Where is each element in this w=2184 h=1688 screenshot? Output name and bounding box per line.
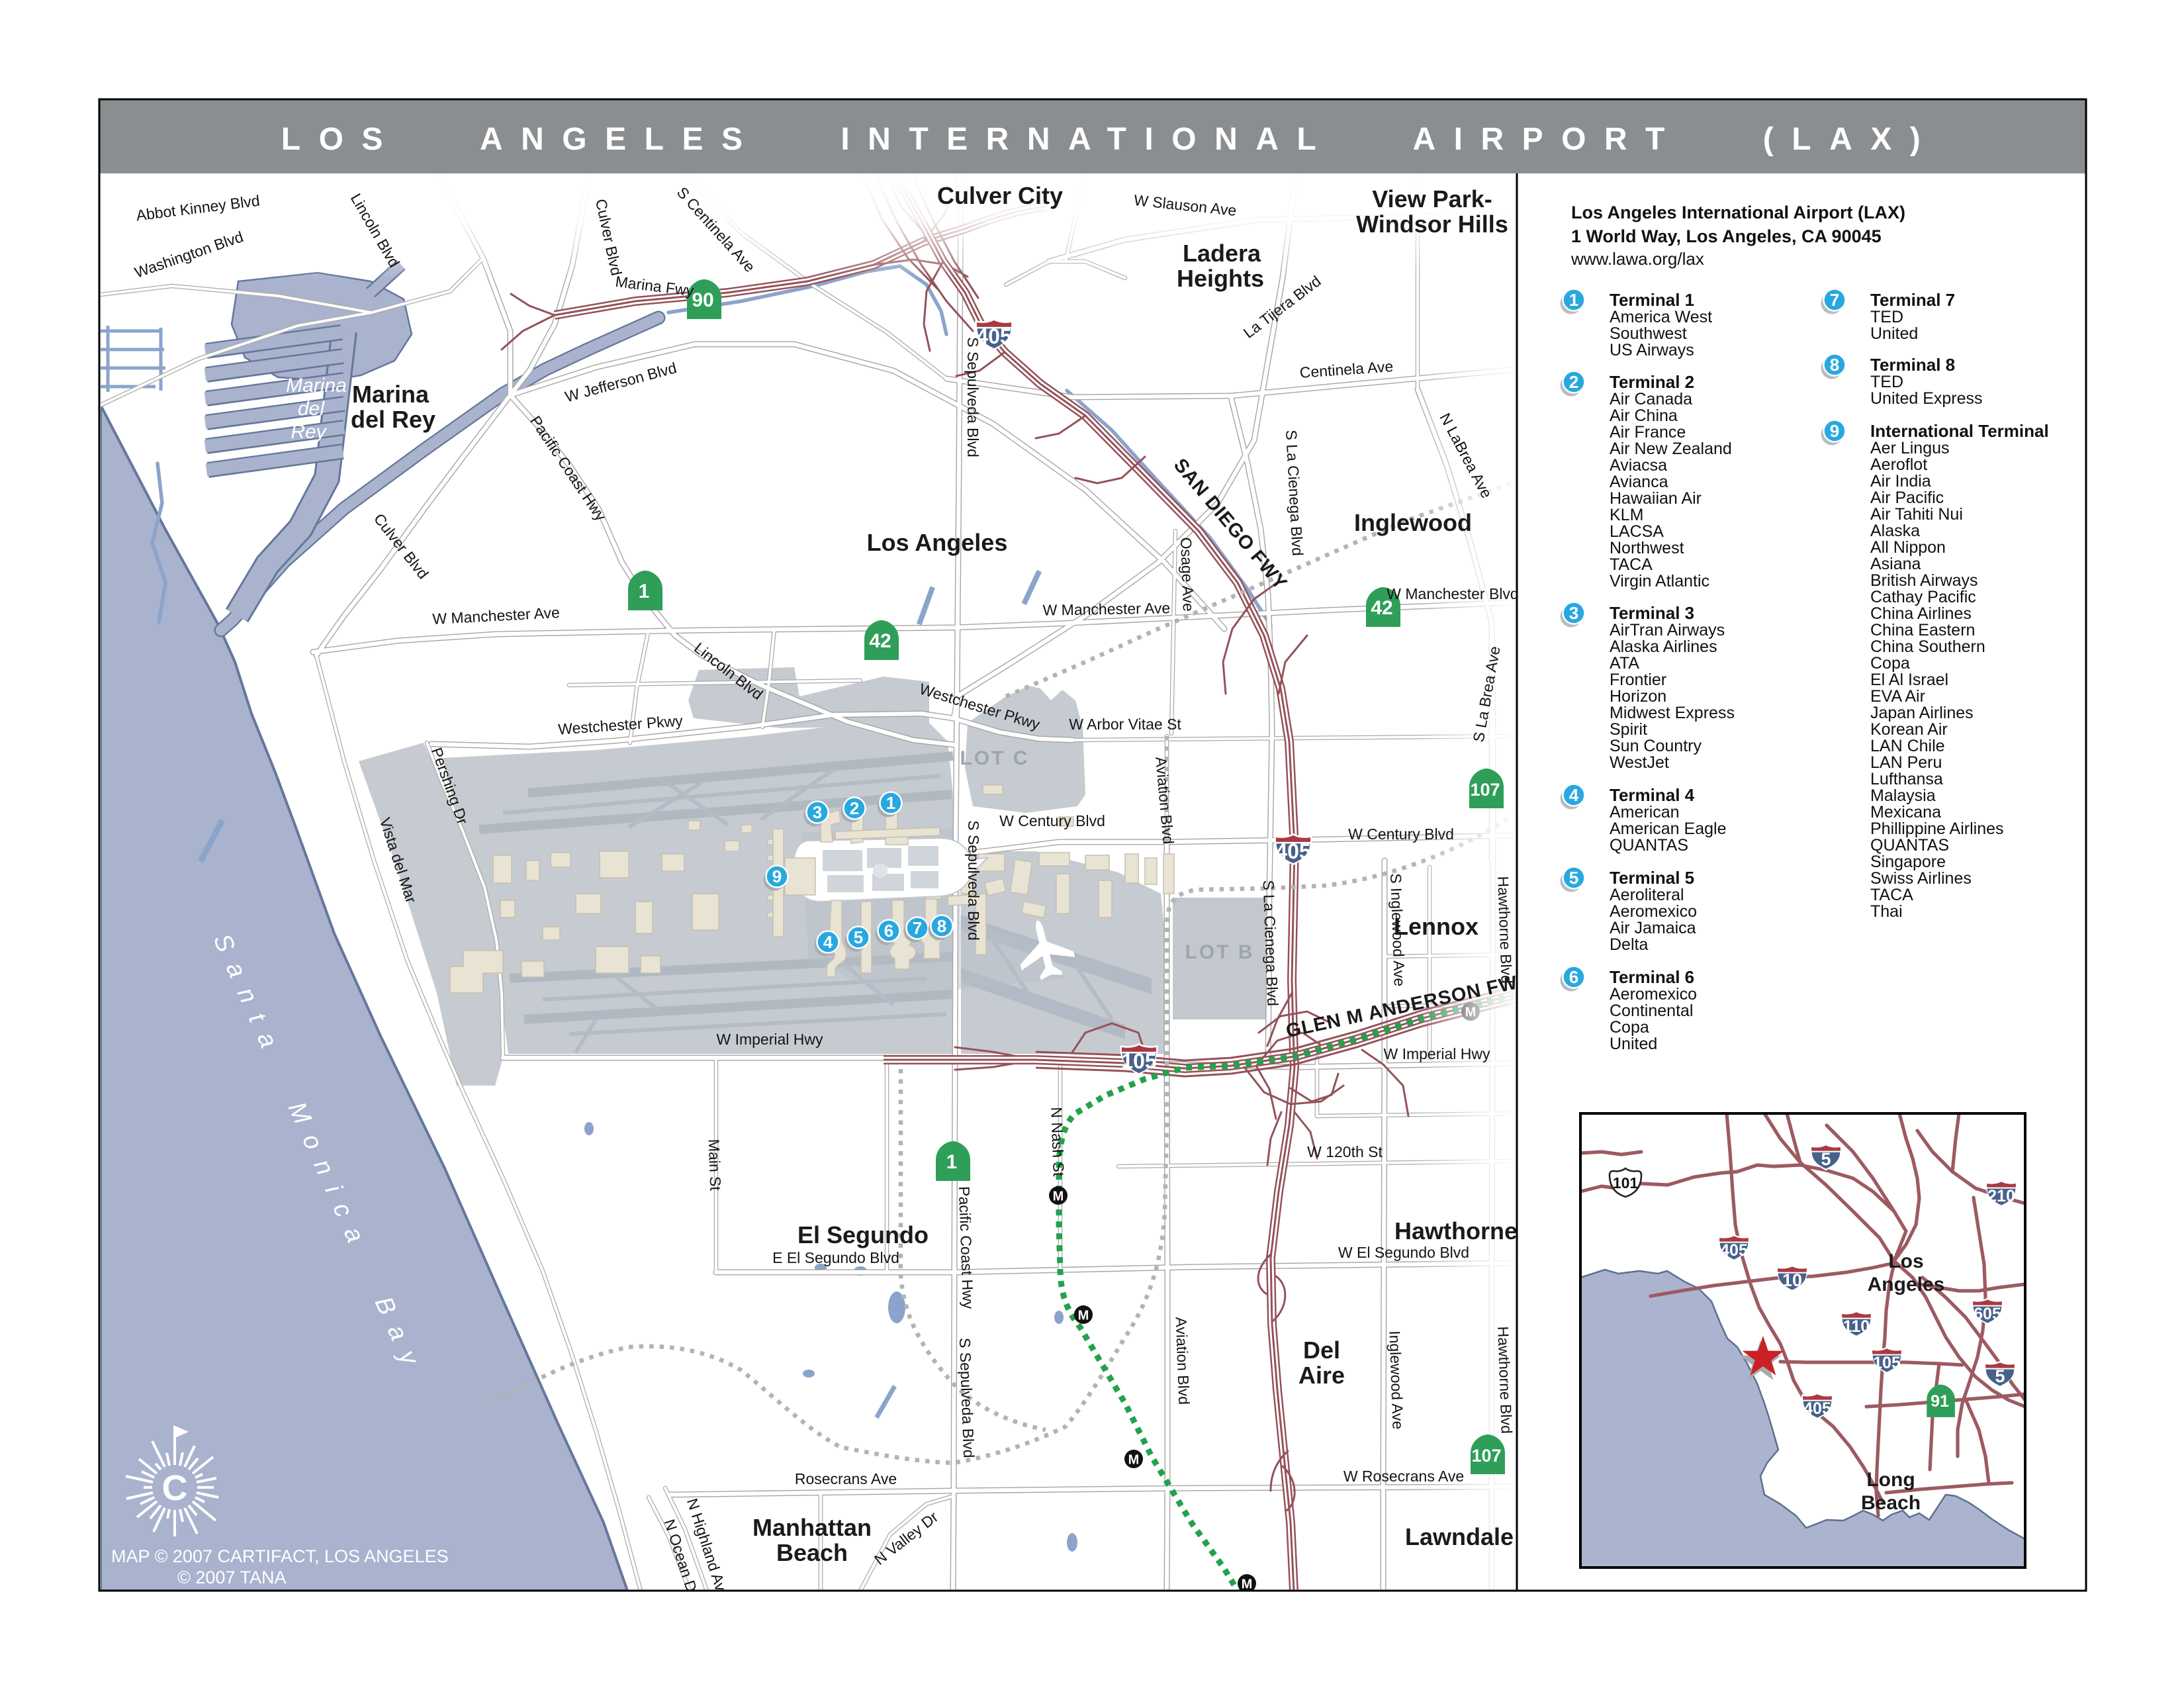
svg-text:6: 6 — [884, 921, 893, 941]
svg-text:EVA Air: EVA Air — [1870, 687, 1925, 706]
svg-text:Terminal 2: Terminal 2 — [1610, 372, 1694, 392]
svg-text:Main St: Main St — [705, 1139, 725, 1191]
svg-text:Swiss Airlines: Swiss Airlines — [1870, 869, 1972, 888]
svg-text:KLM: KLM — [1610, 506, 1643, 524]
svg-text:QUANTAS: QUANTAS — [1870, 836, 1949, 855]
svg-text:Air France: Air France — [1610, 423, 1686, 442]
svg-text:Aviacsa: Aviacsa — [1610, 456, 1667, 475]
svg-text:China Eastern: China Eastern — [1870, 621, 1975, 639]
svg-text:LAN Chile: LAN Chile — [1870, 737, 1945, 755]
svg-text:Beach: Beach — [1861, 1492, 1921, 1514]
svg-text:Spirit: Spirit — [1610, 720, 1647, 739]
svg-text:United Express: United Express — [1870, 389, 1983, 408]
svg-text:1 World Way, Los Angeles, CA 9: 1 World Way, Los Angeles, CA 90045 — [1571, 226, 1882, 246]
svg-text:Japan Airlines: Japan Airlines — [1870, 704, 1974, 722]
svg-text:Thai: Thai — [1870, 902, 1903, 921]
svg-text:Beach: Beach — [776, 1539, 848, 1566]
svg-text:90: 90 — [692, 289, 713, 311]
svg-text:El Segundo: El Segundo — [797, 1221, 929, 1248]
svg-text:www.lawa.org/lax: www.lawa.org/lax — [1570, 249, 1704, 269]
svg-text:Terminal 8: Terminal 8 — [1870, 355, 1955, 375]
svg-text:S Sepulveda Blvd: S Sepulveda Blvd — [965, 820, 982, 941]
svg-text:Air New Zealand: Air New Zealand — [1610, 440, 1732, 458]
svg-text:Angeles: Angeles — [1868, 1274, 1945, 1295]
svg-text:5: 5 — [1569, 868, 1578, 888]
svg-text:British Airways: British Airways — [1870, 571, 1978, 590]
svg-text:Marina: Marina — [286, 375, 347, 397]
svg-text:All Nippon: All Nippon — [1870, 538, 1946, 557]
svg-text:Delta: Delta — [1610, 935, 1648, 954]
svg-text:Frontier: Frontier — [1610, 671, 1666, 689]
svg-text:Air China: Air China — [1610, 406, 1678, 425]
svg-text:42: 42 — [869, 630, 891, 652]
svg-text:Los: Los — [1888, 1250, 1923, 1272]
svg-text:2: 2 — [1569, 372, 1578, 392]
svg-text:American: American — [1610, 803, 1680, 821]
svg-text:Culver City: Culver City — [937, 182, 1063, 209]
svg-text:W Manchester Blvd: W Manchester Blvd — [1387, 585, 1518, 602]
svg-text:Copa: Copa — [1870, 654, 1910, 673]
svg-text:Copa: Copa — [1610, 1018, 1649, 1037]
svg-text:107: 107 — [1471, 1446, 1501, 1466]
svg-text:Horizon: Horizon — [1610, 687, 1666, 706]
svg-text:Terminal 5: Terminal 5 — [1610, 868, 1694, 888]
svg-text:Aire: Aire — [1298, 1362, 1345, 1389]
svg-text:4: 4 — [823, 932, 833, 952]
svg-text:TED: TED — [1870, 308, 1903, 326]
svg-text:International Terminal: International Terminal — [1870, 421, 2049, 441]
svg-text:105: 105 — [1121, 1049, 1156, 1073]
svg-text:405: 405 — [1803, 1399, 1831, 1418]
svg-text:Singapore: Singapore — [1870, 853, 1946, 871]
svg-text:Lufthansa: Lufthansa — [1870, 770, 1943, 788]
svg-text:Aeromexico: Aeromexico — [1610, 985, 1697, 1004]
svg-text:3: 3 — [1569, 603, 1578, 623]
svg-text:Rosecrans Ave: Rosecrans Ave — [795, 1470, 897, 1487]
svg-text:Heights: Heights — [1177, 265, 1264, 292]
svg-text:6: 6 — [1569, 967, 1578, 987]
svg-text:Terminal 1: Terminal 1 — [1610, 290, 1694, 310]
svg-text:US Airways: US Airways — [1610, 341, 1694, 359]
svg-text:Terminal 7: Terminal 7 — [1870, 290, 1955, 310]
svg-text:405: 405 — [1275, 839, 1310, 863]
svg-text:C: C — [162, 1468, 188, 1508]
svg-text:5: 5 — [854, 927, 863, 947]
svg-text:Terminal 3: Terminal 3 — [1610, 603, 1694, 623]
svg-text:Inglewood: Inglewood — [1354, 509, 1472, 536]
svg-text:QUANTAS: QUANTAS — [1610, 836, 1688, 855]
svg-text:Aeromexico: Aeromexico — [1610, 902, 1697, 921]
svg-text:Los Angeles International Airp: Los Angeles International Airport (LAX) — [1571, 203, 1905, 222]
svg-text:Phillippine Airlines: Phillippine Airlines — [1870, 820, 2004, 838]
svg-text:9: 9 — [1830, 421, 1839, 441]
svg-text:Windsor Hills: Windsor Hills — [1356, 211, 1508, 238]
svg-text:Air Canada: Air Canada — [1610, 390, 1692, 408]
svg-text:Air Pacific: Air Pacific — [1870, 489, 1944, 507]
svg-text:Rey: Rey — [291, 421, 327, 443]
svg-text:Inglewood Ave: Inglewood Ave — [1386, 1331, 1406, 1430]
svg-text:LOT C: LOT C — [960, 747, 1030, 769]
svg-text:3: 3 — [813, 802, 822, 822]
svg-text:Avianca: Avianca — [1610, 473, 1668, 491]
svg-text:8: 8 — [937, 916, 946, 936]
svg-text:1: 1 — [886, 793, 895, 813]
svg-text:S Sepulveda Blvd: S Sepulveda Blvd — [964, 337, 981, 457]
svg-text:Aeroflot: Aeroflot — [1870, 455, 1927, 474]
svg-text:Southwest: Southwest — [1610, 324, 1687, 343]
svg-text:2: 2 — [850, 798, 859, 818]
svg-text:Aviation Blvd: Aviation Blvd — [1173, 1317, 1193, 1405]
svg-text:United: United — [1870, 324, 1918, 343]
svg-text:LOS ANGELES INTERNATIONAL AIRP: LOS ANGELES INTERNATIONAL AIRPORT (LAX) — [281, 122, 1939, 157]
svg-text:210: 210 — [1987, 1187, 2015, 1205]
svg-text:Continental: Continental — [1610, 1002, 1693, 1020]
svg-text:LACSA: LACSA — [1610, 522, 1664, 541]
svg-text:Terminal 6: Terminal 6 — [1610, 967, 1694, 987]
svg-text:Los Angeles: Los Angeles — [867, 529, 1008, 556]
svg-text:W Century Blvd: W Century Blvd — [1348, 825, 1454, 843]
svg-text:WestJet: WestJet — [1610, 753, 1669, 772]
svg-text:United: United — [1610, 1035, 1657, 1053]
svg-text:del Rey: del Rey — [351, 406, 435, 433]
svg-text:1: 1 — [639, 581, 650, 602]
svg-text:MAP © 2007 CARTIFACT, LOS ANGE: MAP © 2007 CARTIFACT, LOS ANGELES — [111, 1546, 449, 1566]
svg-text:9: 9 — [772, 867, 782, 886]
svg-text:Ladera: Ladera — [1183, 240, 1261, 267]
svg-text:LAN Peru: LAN Peru — [1870, 753, 1942, 772]
svg-text:5: 5 — [1821, 1149, 1831, 1169]
svg-text:W 120th St: W 120th St — [1307, 1143, 1383, 1160]
svg-text:605: 605 — [1974, 1305, 2001, 1323]
svg-text:101: 101 — [1613, 1174, 1639, 1192]
svg-text:China Airlines: China Airlines — [1870, 604, 1972, 623]
svg-text:110: 110 — [1843, 1317, 1870, 1336]
svg-text:ATA: ATA — [1610, 654, 1639, 673]
svg-text:Midwest Express: Midwest Express — [1610, 704, 1735, 722]
svg-text:Lennox: Lennox — [1394, 913, 1479, 940]
svg-text:N Nash St: N Nash St — [1048, 1107, 1068, 1177]
svg-text:Air India: Air India — [1870, 472, 1931, 491]
svg-text:Alaska Airlines: Alaska Airlines — [1610, 637, 1717, 656]
svg-text:Marina: Marina — [352, 381, 430, 408]
svg-text:Lawndale: Lawndale — [1405, 1523, 1514, 1550]
svg-text:Terminal 4: Terminal 4 — [1610, 785, 1695, 805]
svg-text:Manhattan: Manhattan — [752, 1514, 872, 1541]
svg-text:del: del — [298, 398, 325, 420]
svg-text:© 2007 TANA: © 2007 TANA — [177, 1568, 286, 1587]
svg-text:Hawaiian Air: Hawaiian Air — [1610, 489, 1702, 508]
svg-text:107: 107 — [1470, 780, 1500, 800]
svg-text:W Imperial Hwy: W Imperial Hwy — [1383, 1045, 1490, 1062]
svg-text:1: 1 — [946, 1151, 958, 1173]
svg-text:Aeroliteral: Aeroliteral — [1610, 886, 1684, 904]
svg-text:91: 91 — [1931, 1392, 1949, 1411]
svg-text:W Century Blvd: W Century Blvd — [999, 812, 1105, 829]
svg-text:W Rosecrans Ave: W Rosecrans Ave — [1343, 1468, 1464, 1485]
svg-text:10: 10 — [1782, 1270, 1802, 1290]
svg-text:4: 4 — [1569, 785, 1579, 805]
svg-text:W Imperial Hwy: W Imperial Hwy — [716, 1031, 823, 1048]
svg-text:Alaska: Alaska — [1870, 522, 1920, 540]
svg-text:Air Jamaica: Air Jamaica — [1610, 919, 1696, 937]
svg-text:AirTran Airways: AirTran Airways — [1610, 621, 1725, 639]
svg-text:TED: TED — [1870, 373, 1903, 391]
svg-text:America West: America West — [1610, 308, 1712, 326]
svg-text:Cathay Pacific: Cathay Pacific — [1870, 588, 1976, 606]
svg-text:China Southern: China Southern — [1870, 637, 1985, 656]
svg-text:Virgin Atlantic: Virgin Atlantic — [1610, 572, 1709, 590]
svg-text:Hawthorne: Hawthorne — [1394, 1217, 1518, 1244]
svg-text:Long: Long — [1866, 1469, 1915, 1491]
svg-text:American Eagle: American Eagle — [1610, 820, 1726, 838]
svg-text:7: 7 — [913, 918, 922, 938]
svg-text:E El Segundo Blvd: E El Segundo Blvd — [772, 1249, 899, 1266]
svg-text:Osage Ave: Osage Ave — [1177, 537, 1197, 612]
svg-text:W Arbor Vitae St: W Arbor Vitae St — [1069, 716, 1181, 733]
svg-text:Malaysia: Malaysia — [1870, 786, 1936, 805]
svg-text:El Al Israel: El Al Israel — [1870, 671, 1948, 689]
svg-text:7: 7 — [1830, 290, 1839, 310]
svg-text:W El Segundo Blvd: W El Segundo Blvd — [1338, 1244, 1469, 1261]
svg-text:LOT B: LOT B — [1185, 941, 1255, 963]
svg-text:405: 405 — [1720, 1241, 1748, 1260]
svg-text:TACA: TACA — [1870, 886, 1913, 904]
svg-text:Mexicana: Mexicana — [1870, 803, 1941, 821]
svg-text:8: 8 — [1830, 355, 1839, 375]
svg-text:View Park-: View Park- — [1372, 185, 1492, 212]
svg-text:Korean Air: Korean Air — [1870, 720, 1948, 739]
svg-text:5: 5 — [1995, 1366, 2005, 1386]
svg-text:Sun Country: Sun Country — [1610, 737, 1702, 755]
svg-text:W Manchester Ave: W Manchester Ave — [1042, 599, 1170, 618]
svg-text:Del: Del — [1303, 1336, 1340, 1364]
svg-text:Aer Lingus: Aer Lingus — [1870, 439, 1950, 457]
svg-text:Northwest: Northwest — [1610, 539, 1684, 557]
svg-text:Asiana: Asiana — [1870, 555, 1921, 573]
svg-text:TACA: TACA — [1610, 555, 1653, 574]
svg-text:1: 1 — [1569, 290, 1578, 310]
svg-text:105: 105 — [1873, 1354, 1901, 1372]
svg-text:Air Tahiti Nui: Air Tahiti Nui — [1870, 505, 1963, 524]
